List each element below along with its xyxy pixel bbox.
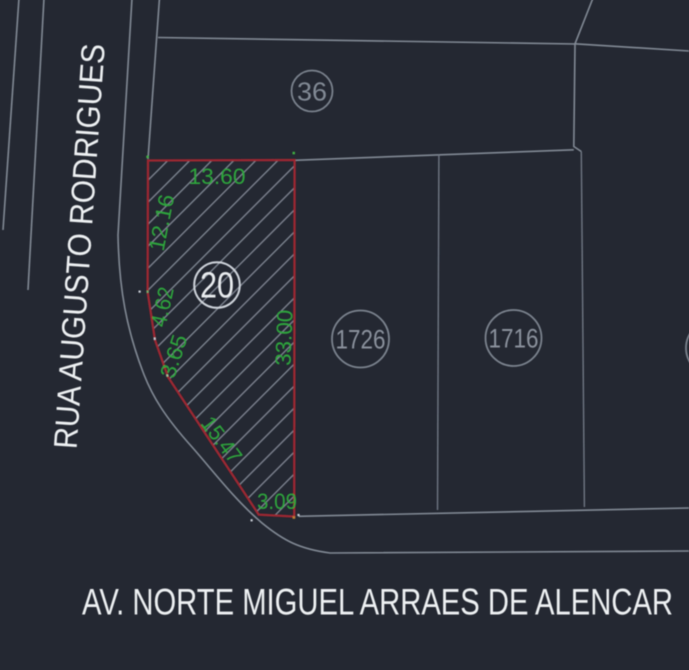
svg-text:33.00: 33.00	[271, 309, 298, 366]
svg-text:1716: 1716	[489, 324, 539, 354]
svg-text:36: 36	[297, 77, 327, 107]
svg-text:13.60: 13.60	[189, 164, 246, 189]
svg-text:AV. NORTE MIGUEL ARRAES DE ALE: AV. NORTE MIGUEL ARRAES DE ALENCAR	[82, 582, 673, 623]
svg-text:20: 20	[200, 265, 234, 306]
svg-text:1726: 1726	[336, 325, 386, 355]
svg-text:3.09: 3.09	[257, 489, 297, 514]
